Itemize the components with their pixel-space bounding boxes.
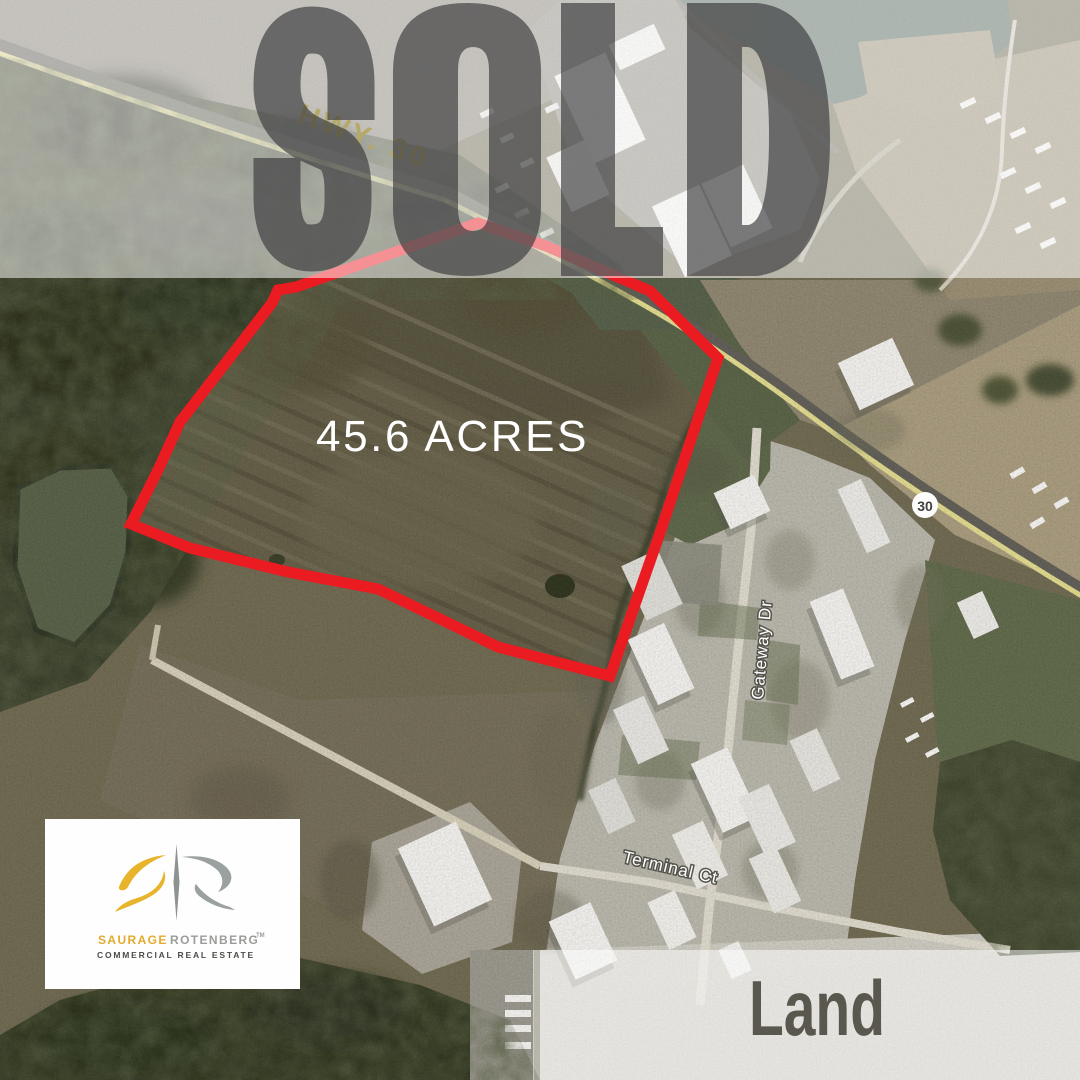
- svg-text:TM: TM: [256, 933, 265, 939]
- svg-text:SAURAGE: SAURAGE: [98, 933, 168, 947]
- svg-text:45.6 ACRES: 45.6 ACRES: [316, 412, 589, 461]
- svg-text:COMMERCIAL REAL ESTATE: COMMERCIAL REAL ESTATE: [97, 950, 255, 960]
- svg-text:Land: Land: [749, 965, 885, 1052]
- svg-text:ROTENBERG: ROTENBERG: [170, 933, 259, 947]
- svg-text:30: 30: [917, 498, 933, 514]
